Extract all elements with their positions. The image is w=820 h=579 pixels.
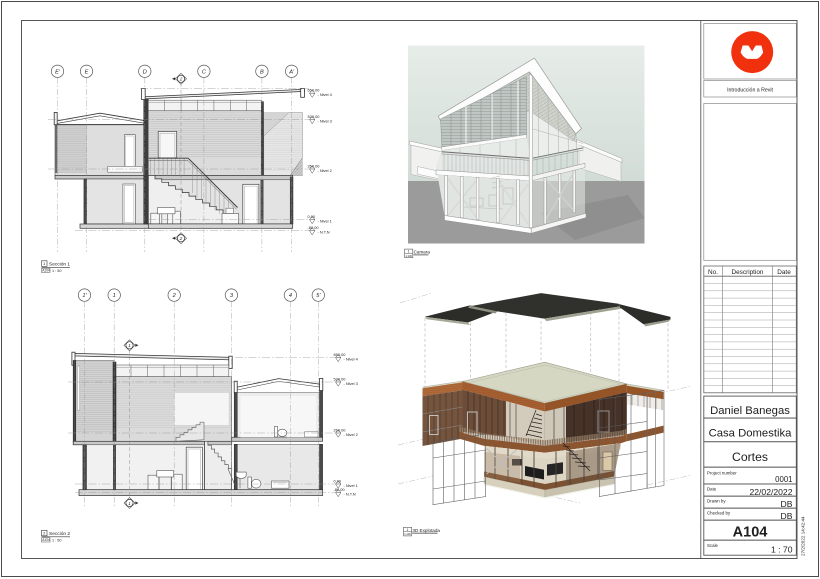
svg-text:2: 2 xyxy=(179,77,183,82)
svg-text:- Nivel 4: - Nivel 4 xyxy=(318,92,333,97)
svg-text:Scale: Scale xyxy=(707,543,719,548)
svg-text:B: B xyxy=(260,69,264,75)
svg-text:- Nivel 4: - Nivel 4 xyxy=(344,357,359,362)
svg-text:1:100: 1:100 xyxy=(405,254,412,258)
svg-text:1: 1 xyxy=(408,250,410,254)
svg-text:1 : 70: 1 : 70 xyxy=(771,545,793,555)
svg-text:A104: A104 xyxy=(733,524,768,540)
svg-text:Casa Domestika: Casa Domestika xyxy=(709,428,793,440)
svg-text:4: 4 xyxy=(289,293,292,299)
svg-text:- N.T.N: - N.T.N xyxy=(344,492,356,497)
svg-text:- Nivel 1: - Nivel 1 xyxy=(344,483,358,488)
svg-text:1:100: 1:100 xyxy=(404,532,411,536)
svg-text:DB: DB xyxy=(781,499,793,509)
svg-text:- Nivel 2: - Nivel 2 xyxy=(344,432,358,437)
svg-text:DB: DB xyxy=(781,511,793,521)
svg-text:Sección 1: Sección 1 xyxy=(49,261,70,267)
svg-text:A': A' xyxy=(288,69,295,75)
svg-text:0.00: 0.00 xyxy=(308,214,316,219)
svg-text:- Nivel 2: - Nivel 2 xyxy=(318,168,332,173)
svg-text:1: 1 xyxy=(128,501,131,506)
svg-text:- Nivel 3: - Nivel 3 xyxy=(318,119,332,124)
svg-text:27/2/2022 14:42:44: 27/2/2022 14:42:44 xyxy=(801,516,806,556)
svg-text:1 : 50: 1 : 50 xyxy=(52,269,62,273)
svg-text:1: 1 xyxy=(407,528,409,532)
svg-text:3D Explotada: 3D Explotada xyxy=(412,528,440,533)
svg-text:Project number: Project number xyxy=(707,470,737,475)
svg-text:- Nivel 1: - Nivel 1 xyxy=(318,219,332,224)
svg-text:- N.T.N: - N.T.N xyxy=(318,230,330,235)
svg-text:- Nivel 3: - Nivel 3 xyxy=(344,381,358,386)
svg-text:Cortes: Cortes xyxy=(732,450,768,464)
svg-text:1 : 50: 1 : 50 xyxy=(52,538,62,542)
svg-text:Drawn by: Drawn by xyxy=(707,498,726,503)
svg-text:Date: Date xyxy=(707,486,717,491)
svg-text:Camara: Camara xyxy=(414,250,431,255)
svg-text:2: 2 xyxy=(179,236,183,241)
svg-text:1: 1 xyxy=(128,343,131,348)
svg-text:22/02/2022: 22/02/2022 xyxy=(749,487,792,497)
svg-text:A104: A104 xyxy=(42,269,50,273)
svg-text:0001: 0001 xyxy=(775,475,792,484)
svg-text:Sección 2: Sección 2 xyxy=(49,531,70,537)
svg-text:Introducción a Revit: Introducción a Revit xyxy=(727,87,773,93)
svg-text:Date: Date xyxy=(777,269,791,276)
svg-text:A104: A104 xyxy=(42,538,50,542)
svg-text:Daniel Banegas: Daniel Banegas xyxy=(710,405,790,417)
svg-text:No.: No. xyxy=(708,269,718,276)
svg-text:1: 1 xyxy=(113,293,116,299)
svg-text:D: D xyxy=(143,69,147,75)
svg-text:E: E xyxy=(85,69,89,75)
svg-text:Description: Description xyxy=(732,269,764,276)
svg-text:0.00: 0.00 xyxy=(334,478,342,483)
svg-text:Checked by: Checked by xyxy=(707,510,731,515)
